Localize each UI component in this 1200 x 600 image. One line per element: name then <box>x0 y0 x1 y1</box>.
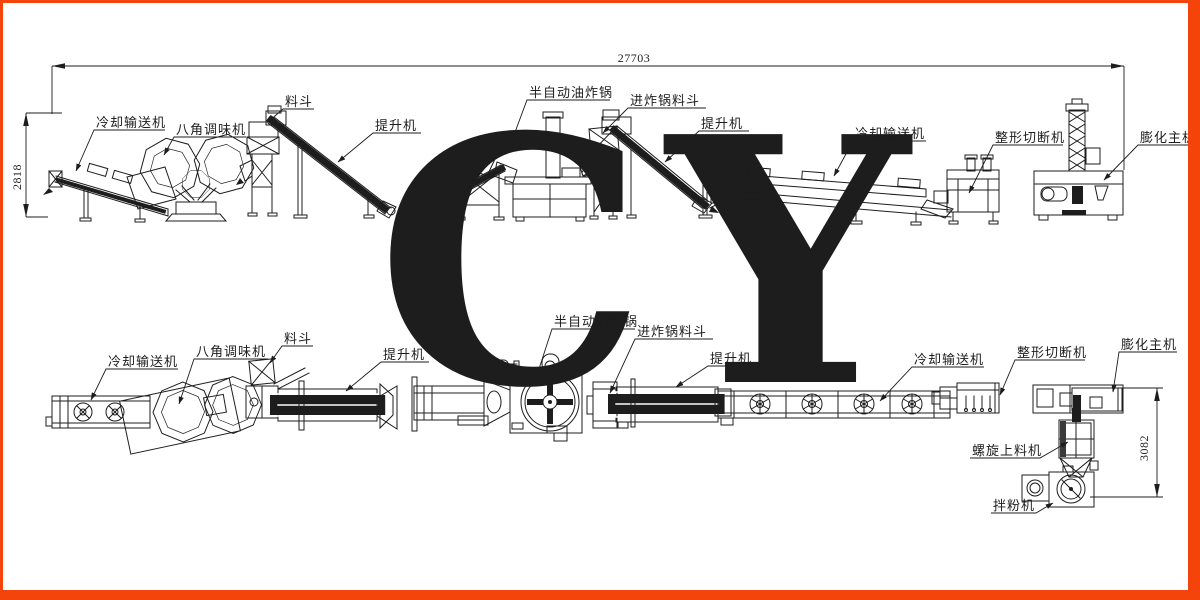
svg-text:料斗: 料斗 <box>285 94 313 109</box>
dimension-elevation-height: 2818 <box>10 113 62 217</box>
dimension-plan-depth-value: 3082 <box>1137 435 1151 461</box>
dimension-overall-length-value: 27703 <box>618 51 651 65</box>
svg-text:进炸锅料斗: 进炸锅料斗 <box>637 324 707 339</box>
plan-shaping-cutter-drawing <box>932 383 999 413</box>
plan-label-extruder: 膨化主机 <box>1113 337 1177 392</box>
dimension-elevation-height-value: 2818 <box>10 164 24 190</box>
svg-text:整形切断机: 整形切断机 <box>1017 345 1087 360</box>
svg-text:料斗: 料斗 <box>284 331 312 346</box>
plan-label-powder-mixer: 拌粉机 <box>991 498 1053 513</box>
svg-text:膨化主机: 膨化主机 <box>1121 337 1177 352</box>
svg-text:八角调味机: 八角调味机 <box>176 122 246 137</box>
dimension-plan-depth: 3082 <box>1090 388 1163 497</box>
plan-seasoning-machine-drawing <box>120 371 268 454</box>
elevation-shaping-cutter-drawing <box>934 155 999 224</box>
plan-feed-funnel-drawing <box>1060 458 1098 477</box>
elevation-extruder-drawing <box>1034 99 1123 220</box>
elevation-label-seasoning-machine: 八角调味机 <box>164 122 246 155</box>
svg-text:冷却输送机: 冷却输送机 <box>108 354 178 369</box>
svg-text:冷却输送机: 冷却输送机 <box>914 352 984 367</box>
svg-text:提升机: 提升机 <box>710 351 752 366</box>
plan-label-hopper: 料斗 <box>270 331 313 363</box>
svg-text:提升机: 提升机 <box>701 116 743 131</box>
plan-screw-feeder-drawing <box>1059 420 1094 458</box>
plan-label-screw-feeder: 螺旋上料机 <box>970 442 1068 458</box>
svg-text:冷却输送机: 冷却输送机 <box>855 126 925 141</box>
plan-label-cooling-conveyor: 冷却输送机 <box>91 354 178 400</box>
svg-text:提升机: 提升机 <box>383 347 425 362</box>
svg-text:提升机: 提升机 <box>375 118 417 133</box>
drawing-page: CY <box>0 0 1200 600</box>
svg-text:螺旋上料机: 螺旋上料机 <box>972 443 1042 458</box>
svg-text:半自动油炸锅: 半自动油炸锅 <box>529 85 613 100</box>
svg-text:拌粉机: 拌粉机 <box>993 498 1035 513</box>
elevation-label-extruder: 膨化主机 <box>1104 130 1196 180</box>
plan-extruder-drawing <box>1033 385 1123 422</box>
plan-cooling-conveyor-drawing <box>46 396 150 428</box>
svg-text:八角调味机: 八角调味机 <box>196 344 266 359</box>
svg-text:冷却输送机: 冷却输送机 <box>96 115 166 130</box>
svg-text:整形切断机: 整形切断机 <box>995 130 1065 145</box>
svg-text:半自动油炸锅: 半自动油炸锅 <box>554 314 638 329</box>
svg-text:进炸锅料斗: 进炸锅料斗 <box>630 93 700 108</box>
svg-text:膨化主机: 膨化主机 <box>1140 130 1196 145</box>
